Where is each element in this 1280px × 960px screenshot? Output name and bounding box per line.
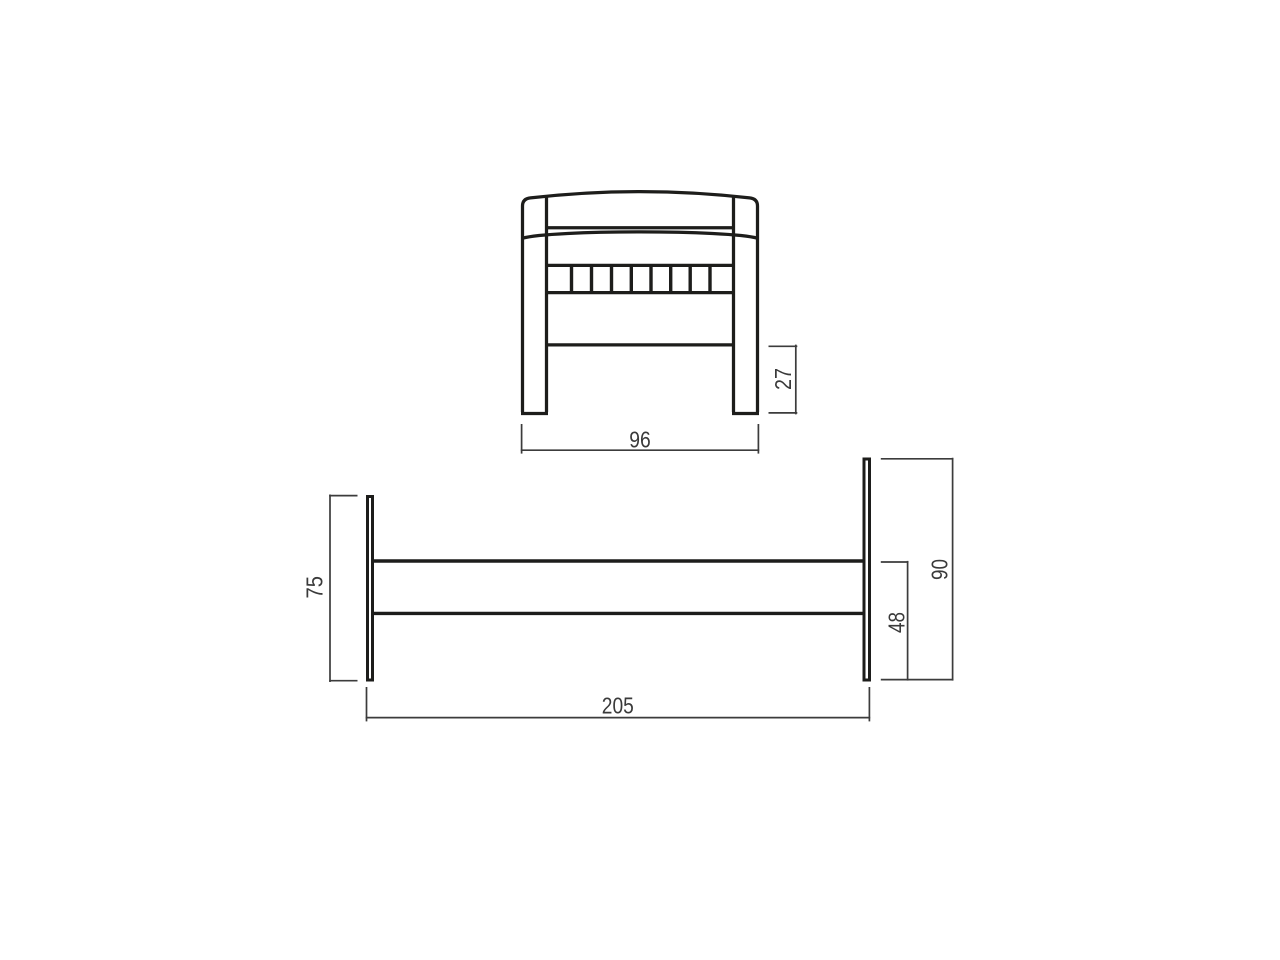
svg-text:205: 205 bbox=[602, 693, 634, 719]
svg-text:48: 48 bbox=[884, 612, 910, 633]
svg-text:90: 90 bbox=[926, 559, 952, 580]
svg-text:27: 27 bbox=[770, 368, 796, 390]
svg-text:96: 96 bbox=[629, 426, 651, 452]
svg-text:75: 75 bbox=[301, 576, 327, 599]
